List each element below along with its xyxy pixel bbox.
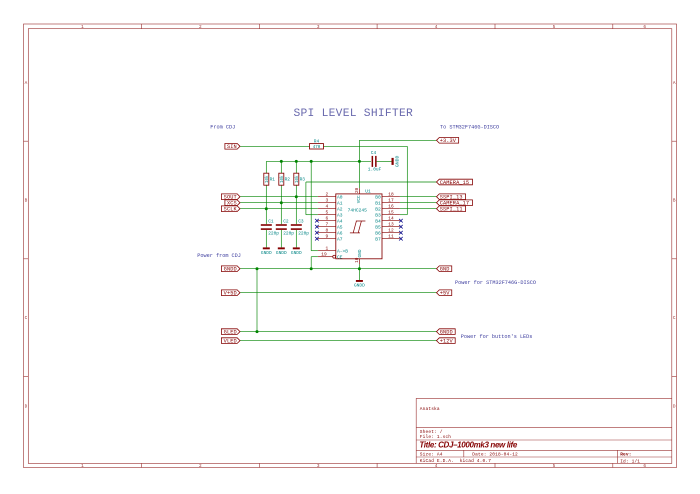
svg-text:15: 15 — [388, 210, 394, 216]
svg-text:A: A — [673, 81, 676, 86]
svg-text:3: 3 — [317, 25, 320, 30]
svg-text:R2: R2 — [285, 176, 291, 182]
svg-text:VCC: VCC — [357, 195, 362, 203]
svg-text:D: D — [25, 405, 28, 410]
svg-text:R1: R1 — [270, 176, 276, 182]
svg-text:A7: A7 — [337, 236, 343, 242]
svg-text:A3: A3 — [337, 212, 343, 218]
svg-text:5: 5 — [553, 464, 556, 469]
svg-text:Size: A4: Size: A4 — [420, 451, 443, 457]
svg-text:1: 1 — [326, 246, 329, 252]
svg-text:11: 11 — [388, 234, 394, 240]
svg-text:C: C — [673, 316, 676, 321]
svg-text:A5: A5 — [337, 224, 343, 230]
svg-text:Rev:: Rev: — [620, 451, 631, 457]
svg-text:File: 1.sch: File: 1.sch — [420, 434, 452, 440]
svg-text:SIN: SIN — [227, 144, 237, 150]
svg-text:B3: B3 — [375, 212, 381, 218]
svg-text:A1: A1 — [337, 200, 343, 206]
svg-text:SCLK: SCLK — [224, 207, 238, 213]
svg-text:CAMERA_15: CAMERA_15 — [440, 180, 470, 186]
svg-text:6: 6 — [643, 25, 646, 30]
svg-text:4: 4 — [435, 464, 438, 469]
svg-text:Power from CDJ: Power from CDJ — [197, 253, 241, 259]
svg-text:Date: 2018-04-12: Date: 2018-04-12 — [472, 451, 518, 457]
svg-text:+3.3V: +3.3V — [440, 138, 457, 144]
svg-text:1: 1 — [81, 25, 84, 30]
svg-text:C4: C4 — [371, 150, 377, 156]
svg-text:5: 5 — [326, 210, 329, 216]
svg-text:B1: B1 — [375, 200, 381, 206]
svg-text:Power for button's LEDs: Power for button's LEDs — [461, 334, 533, 340]
svg-text:A4: A4 — [337, 218, 343, 224]
svg-text:220p: 220p — [283, 231, 294, 237]
svg-text:B0: B0 — [375, 194, 381, 200]
svg-text:A2: A2 — [337, 206, 343, 212]
svg-text:220p: 220p — [268, 231, 279, 237]
svg-text:16: 16 — [388, 204, 394, 210]
svg-text:Title: CDJ–1000mk3 new life: Title: CDJ–1000mk3 new life — [419, 441, 517, 450]
svg-text:3: 3 — [317, 464, 320, 469]
svg-text:GNDD: GNDD — [395, 156, 401, 168]
svg-text:GNDD: GNDD — [354, 282, 365, 288]
svg-text:19: 19 — [321, 252, 327, 258]
svg-text:B5: B5 — [375, 224, 381, 230]
svg-text:B4: B4 — [375, 218, 381, 224]
svg-text:C: C — [25, 316, 28, 321]
svg-text:2: 2 — [199, 464, 202, 469]
svg-text:1.0uF: 1.0uF — [368, 167, 382, 173]
svg-text:GNDD: GNDD — [276, 250, 287, 256]
svg-text:C3: C3 — [298, 219, 304, 225]
svg-text:20: 20 — [355, 187, 360, 193]
svg-text:U1: U1 — [365, 188, 371, 194]
svg-text:D: D — [673, 405, 676, 410]
svg-text:GNDD: GNDD — [291, 250, 302, 256]
svg-text:+12V: +12V — [440, 339, 454, 345]
svg-text:6: 6 — [326, 216, 329, 222]
svg-text:2: 2 — [199, 25, 202, 30]
svg-text:GNDD: GNDD — [261, 250, 272, 256]
svg-text:V+5D: V+5D — [224, 291, 237, 297]
svg-text:12: 12 — [388, 228, 394, 234]
svg-text:GND: GND — [358, 249, 363, 257]
svg-text:1: 1 — [81, 464, 84, 469]
svg-text:A: A — [25, 81, 28, 86]
svg-text:+5V: +5V — [440, 291, 451, 297]
svg-text:Id: 1/1: Id: 1/1 — [620, 458, 640, 464]
svg-text:A0: A0 — [337, 194, 343, 200]
svg-text:GNDD: GNDD — [440, 330, 453, 336]
svg-text:Anatska: Anatska — [420, 406, 440, 412]
svg-text:To STM32F746G-DISCO: To STM32F746G-DISCO — [440, 125, 499, 131]
svg-text:470: 470 — [313, 146, 321, 150]
svg-text:4: 4 — [435, 25, 438, 30]
svg-text:B7: B7 — [375, 236, 381, 242]
svg-text:5: 5 — [553, 25, 556, 30]
svg-text:A->B: A->B — [337, 248, 348, 254]
svg-text:9: 9 — [326, 234, 329, 240]
svg-text:SPI LEVEL SHIFTER: SPI LEVEL SHIFTER — [294, 108, 414, 120]
svg-text:Power for STM32F746G-DISCO: Power for STM32F746G-DISCO — [455, 280, 536, 286]
svg-text:GNDD: GNDD — [224, 267, 237, 273]
svg-text:KiCad E.D.A. kicad 4.0.7: KiCad E.D.A. kicad 4.0.7 — [420, 458, 491, 464]
svg-text:R4: R4 — [314, 139, 320, 145]
svg-text:220p: 220p — [298, 231, 309, 237]
svg-text:Sheet: /: Sheet: / — [420, 429, 443, 435]
svg-text:7: 7 — [326, 222, 329, 228]
svg-text:74HC245: 74HC245 — [348, 208, 368, 214]
svg-text:GND: GND — [440, 267, 450, 273]
svg-text:2: 2 — [326, 192, 329, 198]
svg-text:B6: B6 — [375, 230, 381, 236]
svg-text:GLED: GLED — [224, 330, 237, 336]
svg-text:6: 6 — [643, 464, 646, 469]
svg-text:17: 17 — [388, 198, 394, 204]
svg-text:VLED: VLED — [224, 339, 237, 345]
svg-text:C1: C1 — [268, 219, 274, 225]
svg-text:14: 14 — [388, 216, 394, 222]
svg-text:3: 3 — [326, 198, 329, 204]
svg-text:From CDJ: From CDJ — [210, 124, 235, 130]
svg-text:18: 18 — [388, 192, 394, 198]
svg-text:SSPI_11: SSPI_11 — [440, 207, 463, 213]
svg-text:B: B — [673, 199, 676, 204]
svg-text:C2: C2 — [283, 219, 289, 225]
svg-text:A6: A6 — [337, 230, 343, 236]
svg-text:13: 13 — [388, 222, 394, 228]
svg-text:R3: R3 — [300, 176, 306, 182]
svg-text:4: 4 — [326, 204, 329, 210]
svg-text:CE: CE — [337, 254, 343, 260]
svg-text:8: 8 — [326, 228, 329, 234]
svg-text:B: B — [25, 199, 28, 204]
svg-text:B2: B2 — [375, 206, 381, 212]
